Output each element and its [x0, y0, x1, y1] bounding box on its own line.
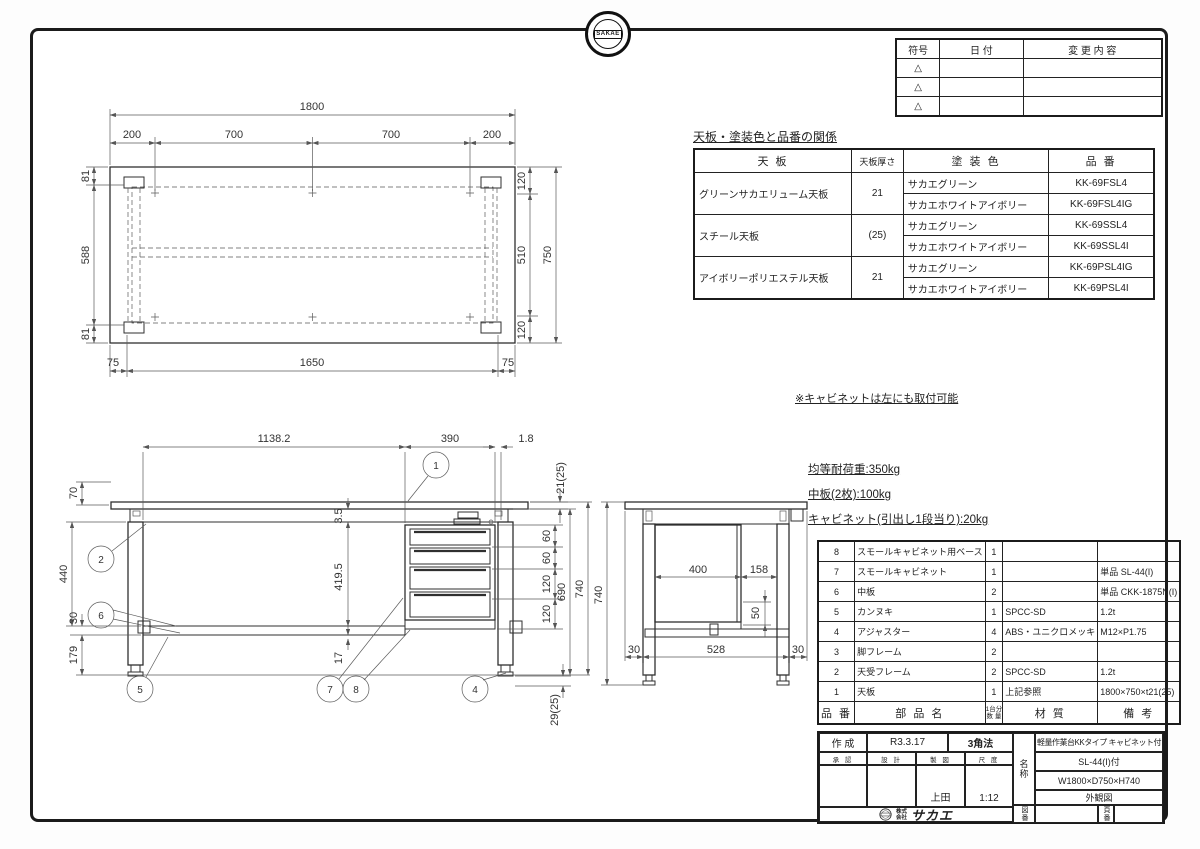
- part-qty: 1: [985, 562, 1003, 582]
- part-no: 7: [818, 562, 855, 582]
- scale-label: 尺 度: [965, 752, 1013, 765]
- dim-440: 440: [58, 565, 70, 583]
- dim-drawer-120b: 120: [541, 605, 553, 623]
- company-prefix: 株式会社: [896, 809, 907, 821]
- page-number-label: 頁番: [1098, 805, 1114, 823]
- part-no: 6: [818, 582, 855, 602]
- dim-17: 17: [333, 652, 345, 664]
- parts-header-qty-top: 1台分: [986, 706, 1003, 713]
- sakae-stamp-text: SAKAE: [594, 30, 622, 39]
- front-dimension-lines: [72, 447, 588, 698]
- part-material: 上記参照: [1003, 682, 1098, 702]
- paint-top-name: アイボリーポリエステル天板: [694, 257, 852, 300]
- dim-1800: 1800: [300, 101, 324, 113]
- part-qty: 2: [985, 582, 1003, 602]
- paint-color: サカエホワイトアイボリー: [903, 278, 1049, 300]
- part-qty: 4: [985, 622, 1003, 642]
- revision-table: 符号 日 付 変 更 内 容 △ △ △: [895, 38, 1163, 117]
- part-remark: 1800×750×t21(25): [1098, 682, 1181, 702]
- revision-symbol-header: 符号: [896, 39, 940, 59]
- part-material: SPCC-SD: [1003, 602, 1098, 622]
- dim-30: 30: [68, 612, 80, 624]
- part-no: 1: [818, 682, 855, 702]
- paint-thickness: (25): [852, 215, 904, 257]
- table-row: 3脚フレーム2: [818, 642, 1180, 662]
- paint-code: KK-69SSL4: [1049, 215, 1154, 236]
- dim-81-top: 81: [80, 170, 92, 182]
- part-material: ABS・ユニクロメッキ: [1003, 622, 1098, 642]
- paint-table-title: 天板・塗装色と品番の関係: [693, 128, 837, 145]
- revision-date-header: 日 付: [940, 39, 1023, 59]
- sakae-stamp-inner-ring: SAKAE: [593, 19, 623, 49]
- drawing-number-value: [1035, 805, 1098, 823]
- part-remark: 1.2t: [1098, 662, 1181, 682]
- table-row: 5カンヌキ1SPCC-SD1.2t: [818, 602, 1180, 622]
- paint-code: KK-69FSL4IG: [1049, 194, 1154, 215]
- front-view-drawing: 1 2 6 5 7 8 4 1138.2 390 1.8 21(25) 70 4…: [58, 422, 603, 732]
- balloon-1: 1: [433, 461, 439, 472]
- dim-528: 528: [707, 644, 725, 656]
- balloon-2: 2: [98, 555, 104, 566]
- part-no: 5: [818, 602, 855, 622]
- part-name: カンヌキ: [855, 602, 986, 622]
- paint-header-color: 塗 装 色: [903, 149, 1049, 173]
- part-remark: M12×P1.75: [1098, 622, 1181, 642]
- dim-21-25: 21(25): [555, 462, 567, 494]
- part-qty: 2: [985, 662, 1003, 682]
- part-no: 2: [818, 662, 855, 682]
- part-name: スモールキャビネット用ベース: [855, 541, 986, 562]
- part-name: 脚フレーム: [855, 642, 986, 662]
- table-row: 4アジャスター4ABS・ユニクロメッキM12×P1.75: [818, 622, 1180, 642]
- dim-1-8: 1.8: [518, 433, 533, 445]
- dim-179: 179: [68, 646, 80, 664]
- dim-750: 750: [542, 246, 554, 264]
- paint-color: サカエグリーン: [903, 173, 1049, 194]
- parts-list-table: 8スモールキャビネット用ベース1 7スモールキャビネット1単品 SL-44(I)…: [817, 540, 1181, 725]
- dim-30-left: 30: [628, 644, 640, 656]
- part-remark: 単品 SL-44(I): [1098, 562, 1181, 582]
- part-no: 4: [818, 622, 855, 642]
- part-material: SPCC-SD: [1003, 662, 1098, 682]
- paint-header-code: 品 番: [1049, 149, 1154, 173]
- dim-700-right: 700: [382, 129, 400, 141]
- part-no: 3: [818, 642, 855, 662]
- load-note-line: 均等耐荷重:350kg: [808, 458, 988, 483]
- name-label: 名称: [1013, 733, 1035, 805]
- revision-date-cell: [940, 97, 1023, 117]
- balloon-7: 7: [327, 685, 333, 696]
- part-material: [1003, 562, 1098, 582]
- drawing-number-label: 図番: [1013, 805, 1035, 823]
- created-label: 作 成: [819, 733, 867, 752]
- load-capacity-notes: 均等耐荷重:350kg 中板(2枚):100kg キャビネット(引出し1段当り)…: [808, 458, 988, 533]
- dim-419-5: 419.5: [333, 563, 345, 591]
- dim-29-25: 29(25): [549, 694, 561, 726]
- dim-690: 690: [556, 583, 568, 601]
- dim-158: 158: [750, 564, 768, 576]
- side-extension-lines: [601, 502, 807, 685]
- revision-triangle-icon: △: [896, 78, 940, 97]
- revision-date-cell: [940, 59, 1023, 78]
- draft-label: 製 図: [916, 752, 965, 765]
- part-remark: 単品 CKK-1875N(I): [1098, 582, 1181, 602]
- paint-thickness: 21: [852, 257, 904, 300]
- side-view-drawing: 400 158 50 30 528 30 740: [593, 437, 823, 732]
- parts-header-remark: 備 考: [1098, 702, 1181, 725]
- dim-510: 510: [516, 246, 528, 264]
- approve-value: [819, 765, 867, 807]
- dim-120-top: 120: [516, 172, 528, 190]
- dim-390: 390: [441, 433, 459, 445]
- part-name: アジャスター: [855, 622, 986, 642]
- balloon-6: 6: [98, 611, 104, 622]
- paint-color: サカエホワイトアイボリー: [903, 194, 1049, 215]
- part-remark: [1098, 642, 1181, 662]
- product-name-line1: 軽量作業台KKタイプ キャビネット付: [1035, 733, 1163, 752]
- part-no: 8: [818, 541, 855, 562]
- balloon-8: 8: [353, 685, 359, 696]
- product-name-line2: SL-44(I)付: [1035, 752, 1163, 771]
- part-qty: 2: [985, 642, 1003, 662]
- part-name: 天板: [855, 682, 986, 702]
- dim-30-right: 30: [792, 644, 804, 656]
- table-row: 8スモールキャビネット用ベース1: [818, 541, 1180, 562]
- approve-label: 承 認: [819, 752, 867, 765]
- revision-date-cell: [940, 78, 1023, 97]
- revision-change-cell: [1023, 59, 1162, 78]
- product-size: W1800×D750×H740: [1035, 771, 1163, 790]
- balloon-5: 5: [137, 685, 143, 696]
- revision-change-cell: [1023, 78, 1162, 97]
- part-name: 中板: [855, 582, 986, 602]
- load-note-line: キャビネット(引出し1段当り):20kg: [808, 508, 988, 533]
- company-logo: 株式会社 サカエ: [819, 807, 1013, 822]
- dim-200-left: 200: [123, 129, 141, 141]
- table-row: 6中板2単品 CKK-1875N(I): [818, 582, 1180, 602]
- parts-header-no: 品 番: [818, 702, 855, 725]
- paint-top-name: グリーンサカエリューム天板: [694, 173, 852, 215]
- side-structure: [625, 502, 807, 685]
- dim-drawer-120a: 120: [541, 575, 553, 593]
- dim-400: 400: [689, 564, 707, 576]
- cabinet-position-note: ※キャビネットは左にも取付可能: [795, 390, 958, 406]
- projection-method: 3角法: [948, 733, 1013, 752]
- revision-triangle-icon: △: [896, 59, 940, 78]
- design-label: 設 計: [867, 752, 916, 765]
- dim-70: 70: [68, 487, 80, 499]
- front-balloons: [88, 452, 506, 702]
- parts-header-qty-bottom: 数 量: [987, 713, 1002, 720]
- dim-81-bottom: 81: [80, 328, 92, 340]
- revision-change-header: 変 更 内 容: [1023, 39, 1162, 59]
- paint-thickness: 21: [852, 173, 904, 215]
- company-name: サカエ: [911, 805, 953, 824]
- part-material: [1003, 582, 1098, 602]
- parts-header-material: 材 質: [1003, 702, 1098, 725]
- part-material: [1003, 541, 1098, 562]
- table-row: 7スモールキャビネット1単品 SL-44(I): [818, 562, 1180, 582]
- dim-740: 740: [574, 580, 586, 598]
- revision-change-cell: [1023, 97, 1162, 117]
- page-number-value: [1114, 805, 1163, 823]
- paint-code: KK-69FSL4: [1049, 173, 1154, 194]
- paint-header-thickness: 天板厚さ: [852, 149, 904, 173]
- parts-header-row: 品 番 部 品 名 1台分数 量 材 質 備 考: [818, 702, 1180, 725]
- dim-drawer-60a: 60: [541, 530, 553, 542]
- dim-1650: 1650: [300, 357, 324, 369]
- dim-120-bottom: 120: [516, 321, 528, 339]
- paint-code: KK-69PSL4I: [1049, 278, 1154, 300]
- design-value: [867, 765, 916, 807]
- paint-color: サカエグリーン: [903, 215, 1049, 236]
- scale-value: 1:12: [965, 765, 1013, 807]
- load-note-line: 中板(2枚):100kg: [808, 483, 988, 508]
- dim-75-left: 75: [107, 357, 119, 369]
- drafter-name: 上田: [916, 765, 965, 807]
- part-material: [1003, 642, 1098, 662]
- paint-top-name: スチール天板: [694, 215, 852, 257]
- sakae-logo-icon: [879, 808, 892, 821]
- parts-header-name: 部 品 名: [855, 702, 986, 725]
- part-remark: [1098, 541, 1181, 562]
- paint-part-number-table: 天 板 天板厚さ 塗 装 色 品 番 グリーンサカエリューム天板 21 サカエグ…: [693, 148, 1155, 300]
- created-date: R3.3.17: [867, 733, 948, 752]
- plan-structure: [110, 167, 515, 343]
- part-qty: 1: [985, 602, 1003, 622]
- dim-200-right: 200: [483, 129, 501, 141]
- part-qty: 1: [985, 682, 1003, 702]
- revision-triangle-icon: △: [896, 97, 940, 117]
- part-remark: 1.2t: [1098, 602, 1181, 622]
- part-name: 天受フレーム: [855, 662, 986, 682]
- dim-588: 588: [80, 246, 92, 264]
- company-prefix-bottom: 会社: [896, 815, 907, 821]
- paint-header-top: 天 板: [694, 149, 852, 173]
- paint-code: KK-69PSL4IG: [1049, 257, 1154, 278]
- dim-740-side: 740: [593, 586, 605, 604]
- dim-1138-2: 1138.2: [258, 433, 291, 445]
- paint-color: サカエグリーン: [903, 257, 1049, 278]
- paint-color: サカエホワイトアイボリー: [903, 236, 1049, 257]
- plan-extension-lines: [86, 109, 562, 377]
- dim-drawer-60b: 60: [541, 552, 553, 564]
- title-block: 作 成 R3.3.17 3角法 承 認 設 計 製 図 尺 度 上田 1:12 …: [817, 731, 1165, 824]
- sakae-stamp-icon: SAKAE: [585, 11, 631, 57]
- paint-code: KK-69SSL4I: [1049, 236, 1154, 257]
- dim-3-5: 3.5: [333, 508, 345, 523]
- dim-50: 50: [750, 607, 762, 619]
- table-row: 2天受フレーム2SPCC-SD1.2t: [818, 662, 1180, 682]
- dim-75-right: 75: [502, 357, 514, 369]
- part-name: スモールキャビネット: [855, 562, 986, 582]
- dim-700-left: 700: [225, 129, 243, 141]
- balloon-4: 4: [472, 685, 478, 696]
- plan-view-drawing: 1800 200 700 700 200 81 588 81 120 510 1…: [70, 85, 630, 385]
- parts-header-qty: 1台分数 量: [985, 702, 1003, 725]
- part-qty: 1: [985, 541, 1003, 562]
- table-row: 1天板1上記参照1800×750×t21(25): [818, 682, 1180, 702]
- drawing-type: 外観図: [1035, 790, 1163, 805]
